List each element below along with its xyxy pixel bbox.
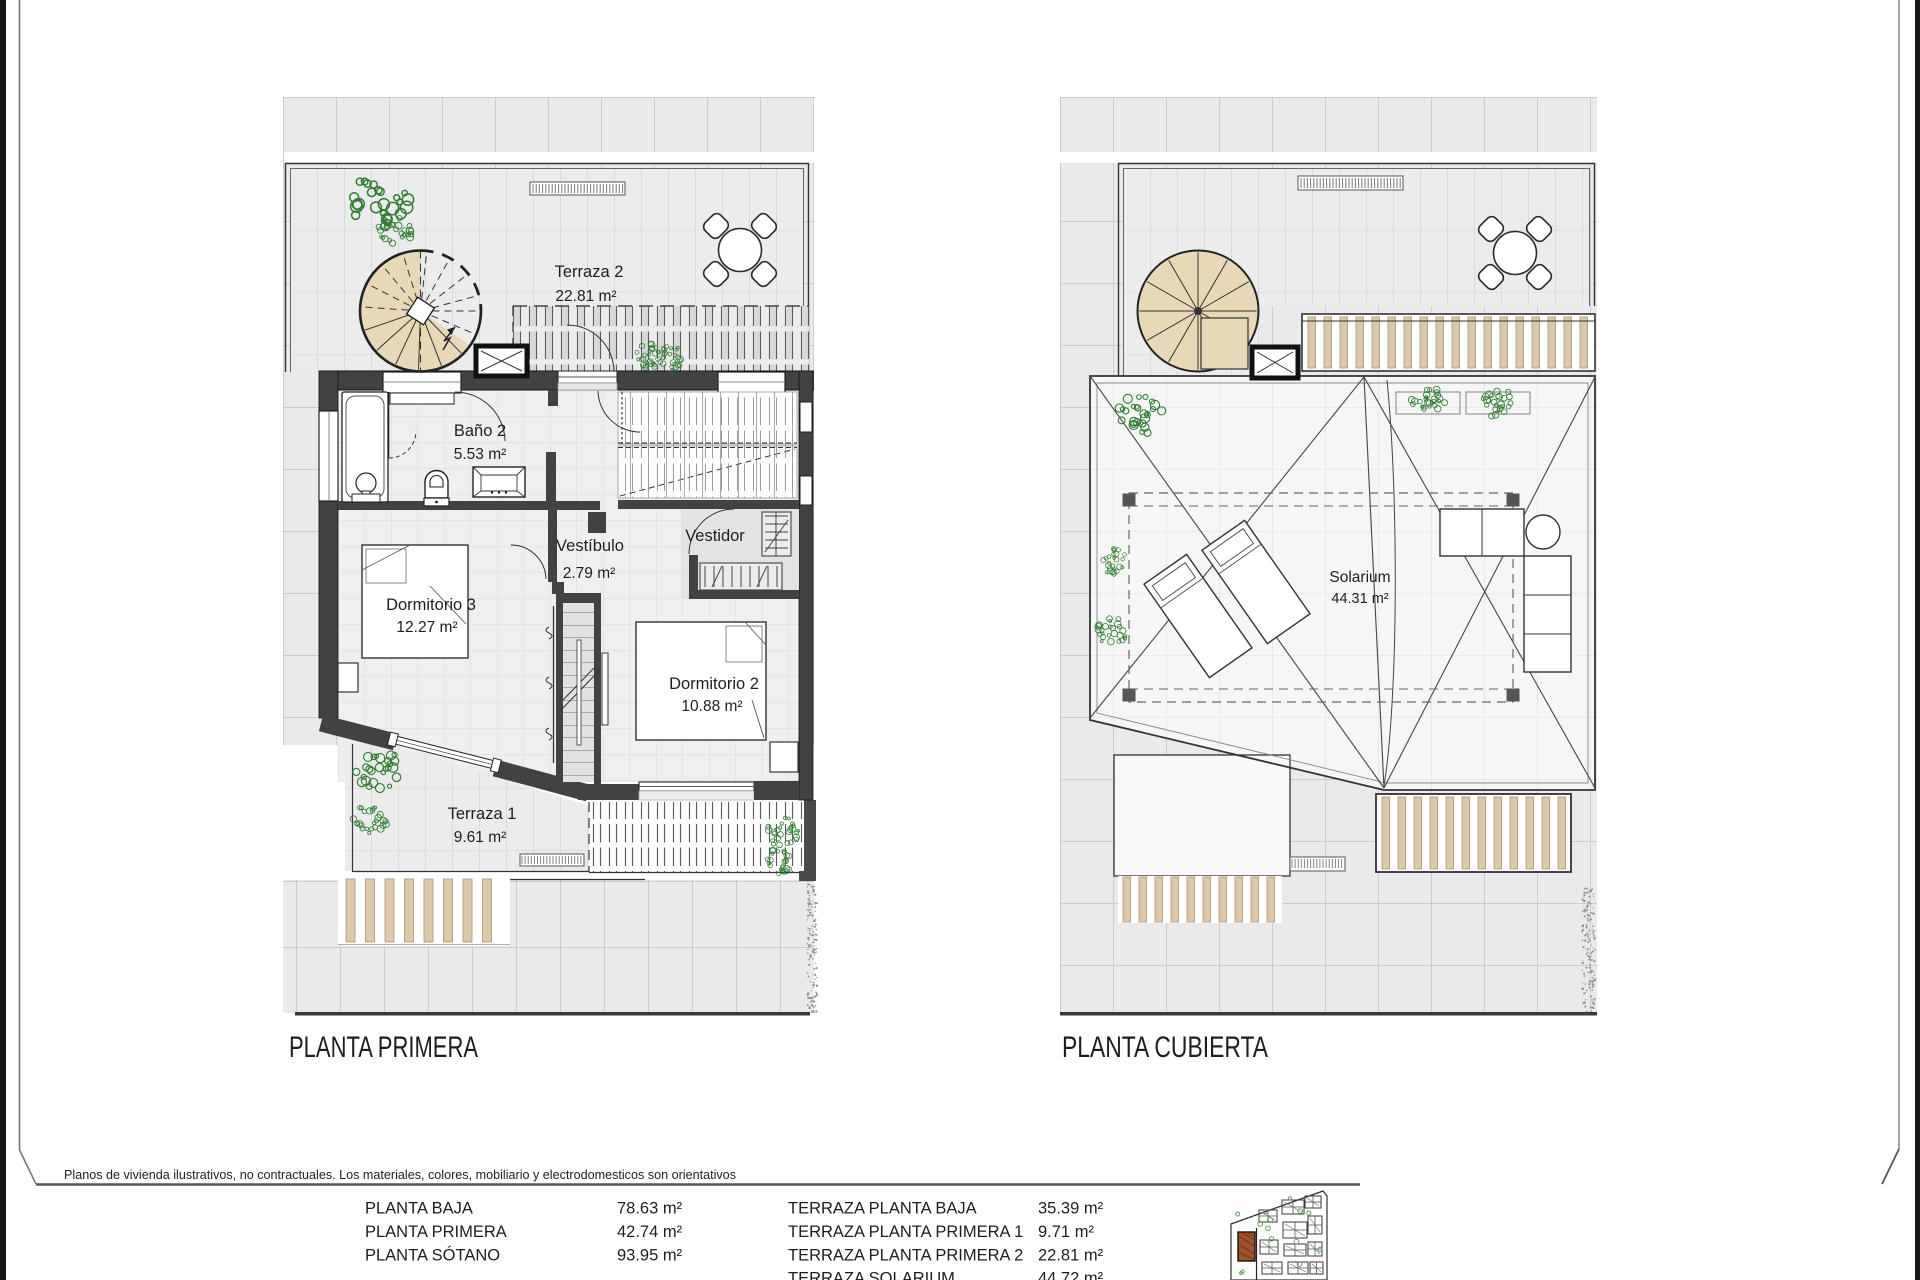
svg-text:Dormitorio 2: Dormitorio 2 bbox=[669, 675, 759, 693]
svg-text:PLANTA SÓTANO: PLANTA SÓTANO bbox=[365, 1245, 500, 1264]
svg-text:Planos de vivienda ilustrativo: Planos de vivienda ilustrativos, no cont… bbox=[64, 1168, 736, 1182]
svg-text:5.53 m²: 5.53 m² bbox=[454, 446, 507, 463]
svg-text:TERRAZA PLANTA BAJA: TERRAZA PLANTA BAJA bbox=[788, 1200, 977, 1218]
svg-text:10.88 m²: 10.88 m² bbox=[681, 698, 742, 715]
svg-text:2.79 m²: 2.79 m² bbox=[563, 565, 616, 582]
svg-text:78.63 m²: 78.63 m² bbox=[617, 1200, 683, 1218]
svg-text:TERRAZA PLANTA PRIMERA 1: TERRAZA PLANTA PRIMERA 1 bbox=[788, 1223, 1023, 1241]
svg-text:Vestidor: Vestidor bbox=[685, 527, 745, 545]
svg-text:Dormitorio 3: Dormitorio 3 bbox=[386, 596, 476, 614]
svg-text:Terraza 2: Terraza 2 bbox=[555, 263, 624, 281]
svg-text:44.31 m²: 44.31 m² bbox=[1331, 591, 1388, 607]
svg-text:9.71 m²: 9.71 m² bbox=[1038, 1223, 1094, 1241]
svg-text:PLANTA PRIMERA: PLANTA PRIMERA bbox=[365, 1223, 507, 1241]
svg-text:12.27 m²: 12.27 m² bbox=[396, 619, 457, 636]
svg-text:22.81 m²: 22.81 m² bbox=[555, 288, 616, 305]
svg-text:44.72 m²: 44.72 m² bbox=[1038, 1270, 1104, 1280]
svg-text:PLANTA PRIMERA: PLANTA PRIMERA bbox=[289, 1031, 478, 1064]
svg-text:9.61 m²: 9.61 m² bbox=[454, 829, 507, 846]
svg-text:22.81 m²: 22.81 m² bbox=[1038, 1246, 1104, 1264]
svg-text:PLANTA BAJA: PLANTA BAJA bbox=[365, 1200, 473, 1218]
svg-text:Vestíbulo: Vestíbulo bbox=[556, 537, 624, 555]
svg-text:Terraza 1: Terraza 1 bbox=[448, 805, 517, 823]
svg-text:TERRAZA SOLARIUM: TERRAZA SOLARIUM bbox=[788, 1270, 955, 1280]
svg-text:TERRAZA PLANTA PRIMERA 2: TERRAZA PLANTA PRIMERA 2 bbox=[788, 1246, 1023, 1264]
svg-text:93.95 m²: 93.95 m² bbox=[617, 1246, 683, 1264]
svg-text:Baño 2: Baño 2 bbox=[454, 422, 506, 440]
svg-text:Solarium: Solarium bbox=[1329, 569, 1390, 586]
svg-text:35.39 m²: 35.39 m² bbox=[1038, 1200, 1104, 1218]
svg-text:42.74 m²: 42.74 m² bbox=[617, 1223, 683, 1241]
svg-text:PLANTA CUBIERTA: PLANTA CUBIERTA bbox=[1062, 1031, 1268, 1064]
